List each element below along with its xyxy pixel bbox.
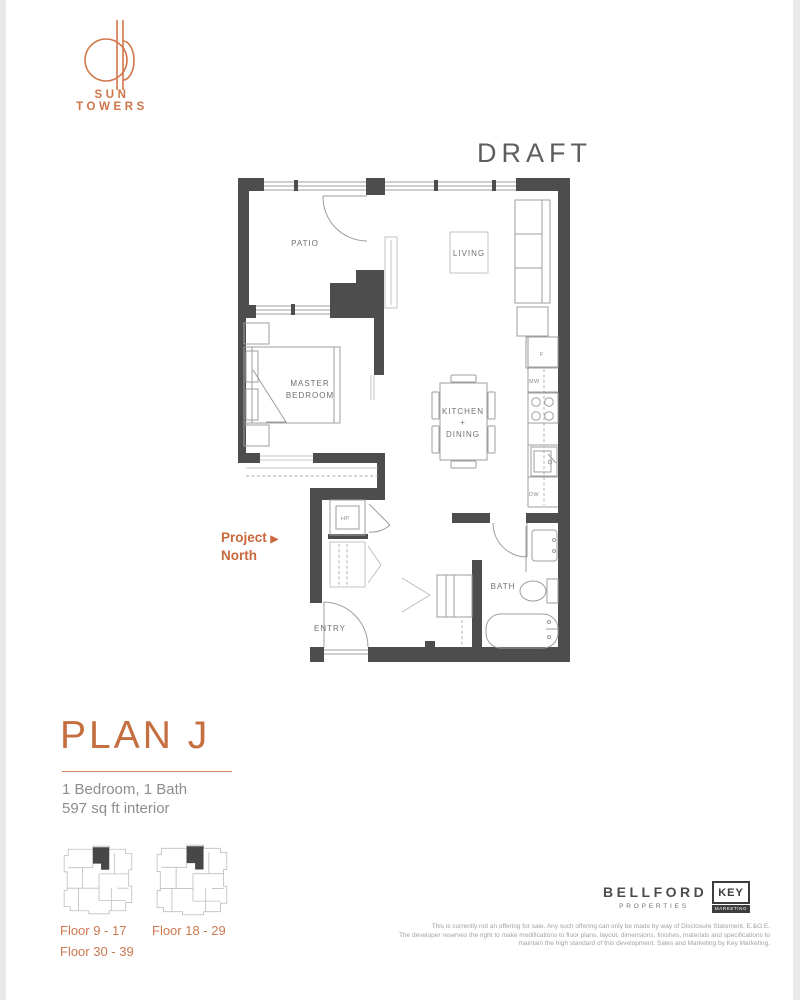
disclaimer-line: maintain the high standard of this devel…: [385, 940, 770, 949]
dishwasher-label: DW: [529, 492, 539, 498]
entry-label: ENTRY: [314, 624, 346, 633]
key-logo-tagline: MARKETING: [712, 905, 750, 913]
master-label-line2: BEDROOM: [286, 391, 334, 400]
floor-range-label: Floor 9 - 17: [60, 920, 134, 941]
heat-pump-closet: HP: [330, 500, 365, 535]
title-underline: [62, 771, 232, 772]
keyplan-unit-highlight: [93, 847, 109, 870]
bath-label: BATH: [491, 582, 516, 591]
disclaimer-line: This is currently not an offering for sa…: [385, 923, 770, 932]
fridge-label: F: [540, 352, 544, 358]
bedroom-bath-count: 1 Bedroom, 1 Bath: [62, 780, 187, 799]
kitchen-label-line2: +: [460, 418, 466, 427]
draft-watermark: DRAFT: [477, 138, 592, 169]
keyplan-floors-18-29: [150, 842, 236, 918]
sofa: [515, 200, 550, 303]
dining-set: KITCHEN + DINING: [432, 375, 495, 468]
kitchen-label-line1: KITCHEN: [442, 407, 484, 416]
page-right-margin: [793, 0, 800, 1000]
side-table: [517, 307, 548, 336]
living-label-box: LIVING: [450, 232, 488, 273]
key-logo-box: KEY: [712, 881, 750, 904]
patio-label: PATIO: [291, 239, 319, 248]
floor-range-label: Floor 30 - 39: [60, 941, 134, 962]
laundry-closet: [402, 575, 472, 647]
page-left-margin: [0, 0, 6, 1000]
hall-closet: [330, 542, 365, 587]
brand-name: SUN TOWERS: [56, 89, 168, 113]
kitchen-counter: F MW DW: [526, 337, 558, 507]
keyplan-floors-9-17: [58, 842, 140, 918]
sun-towers-logo-icon: [84, 18, 136, 92]
living-label: LIVING: [453, 249, 485, 258]
bellford-logo: BELLFORD PROPERTIES: [603, 884, 705, 910]
keyplan-left-labels: Floor 9 - 17 Floor 30 - 39: [60, 920, 134, 962]
master-label-line1: MASTER: [290, 379, 329, 388]
microwave-label: MW: [529, 379, 540, 385]
bellford-wordmark: BELLFORD: [603, 884, 705, 900]
bellford-tagline: PROPERTIES: [603, 903, 705, 910]
key-marketing-logo: KEY MARKETING: [712, 881, 750, 913]
north-arrow-icon: ▶: [271, 534, 279, 545]
keyplan-unit-highlight: [187, 846, 204, 869]
plan-title: PLAN J: [60, 714, 210, 758]
floor-range-label: Floor 18 - 29: [152, 920, 226, 941]
project-north-indicator: Project ▶ North: [221, 530, 278, 564]
legal-disclaimer: This is currently not an offering for sa…: [385, 923, 770, 949]
project-north-line2: North: [221, 548, 278, 564]
project-north-line1: Project: [221, 530, 267, 545]
plan-doors: [323, 196, 527, 647]
kitchen-label-line3: DINING: [446, 430, 480, 439]
plan-specs: 1 Bedroom, 1 Bath 597 sq ft interior: [62, 780, 187, 818]
floor-plan: LIVING PATIO F MW DW KITCHEN +: [230, 170, 575, 670]
keyplan-right-labels: Floor 18 - 29: [152, 920, 226, 941]
disclaimer-line: The developer reserves the right to make…: [385, 932, 770, 941]
interior-area: 597 sq ft interior: [62, 799, 187, 818]
heat-pump-label: HP: [341, 516, 349, 522]
